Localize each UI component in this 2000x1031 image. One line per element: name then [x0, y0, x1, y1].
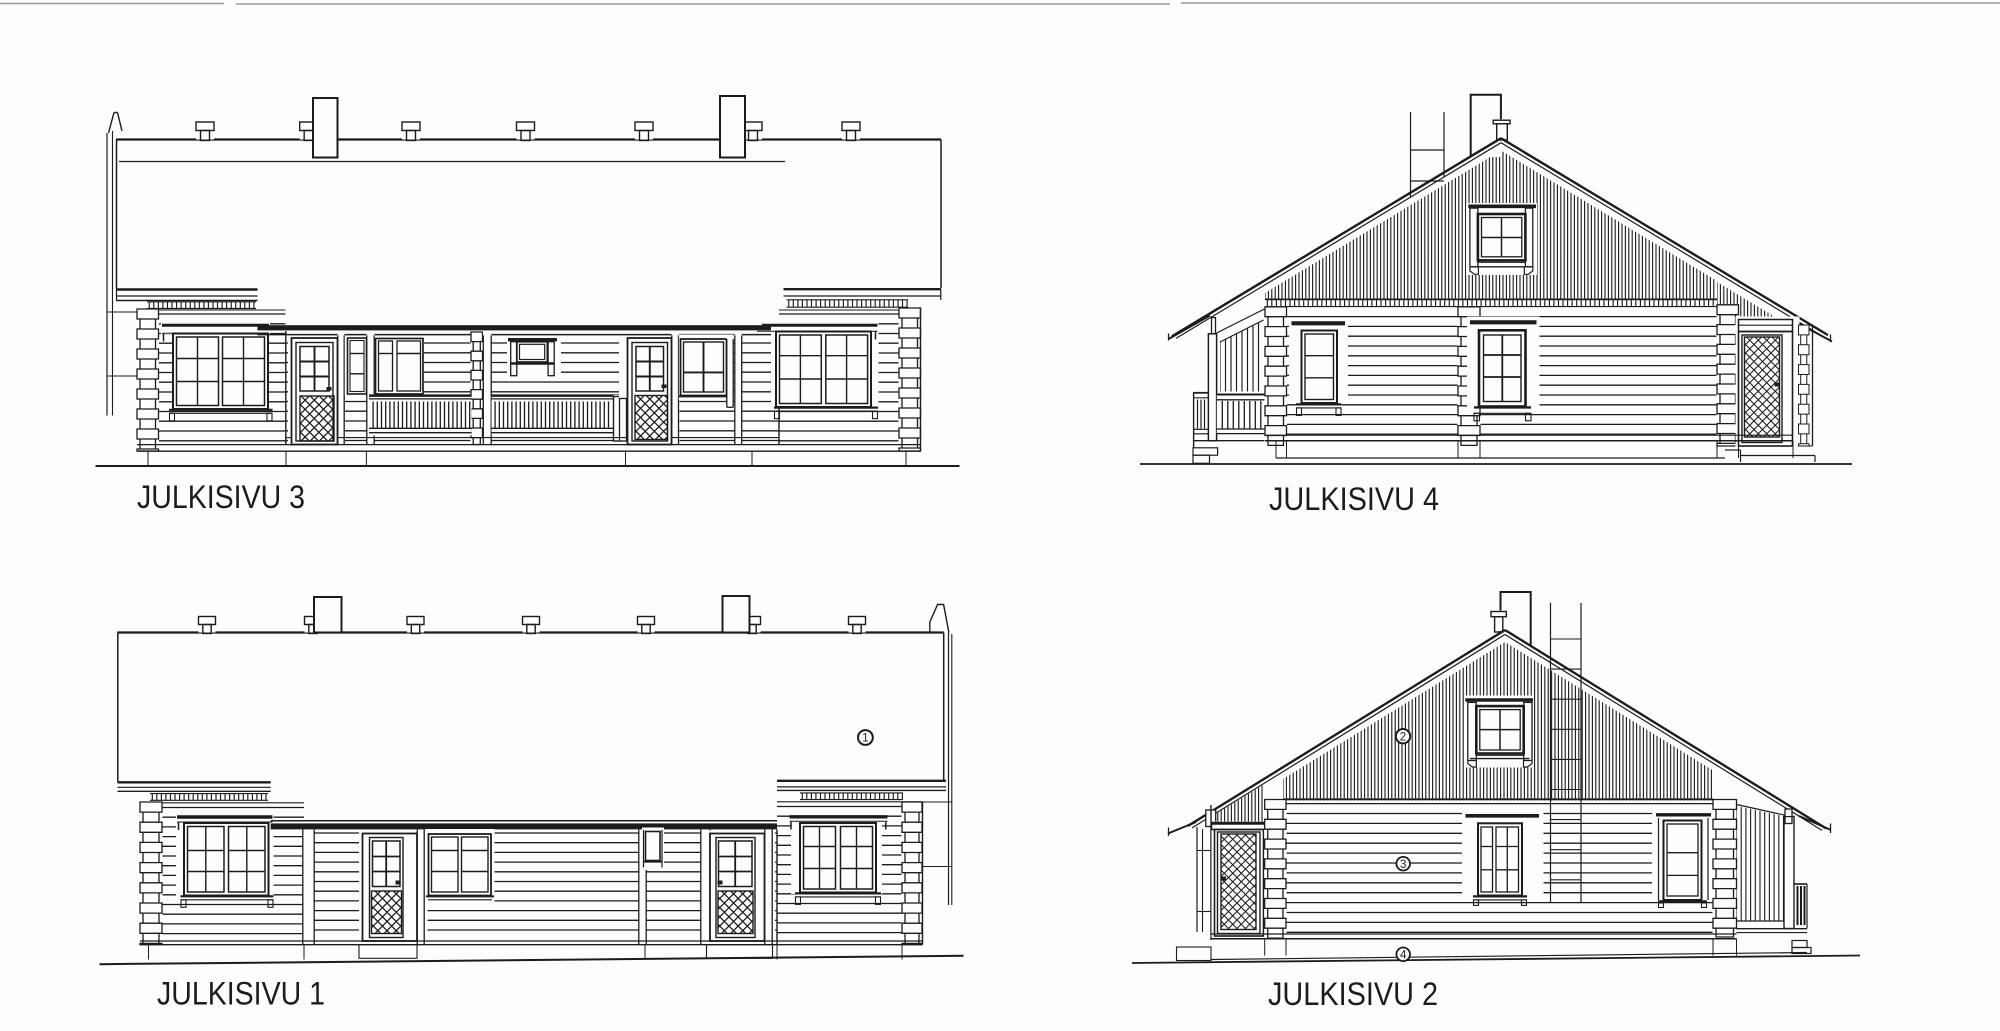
svg-text:3: 3 [1400, 859, 1406, 871]
svg-text:JULKISIVU 3: JULKISIVU 3 [137, 479, 305, 515]
svg-text:JULKISIVU 1: JULKISIVU 1 [157, 976, 325, 1012]
svg-text:2: 2 [1400, 731, 1406, 743]
svg-text:4: 4 [1400, 949, 1407, 961]
svg-text:1: 1 [862, 733, 868, 745]
svg-text:JULKISIVU 2: JULKISIVU 2 [1268, 976, 1438, 1012]
svg-text:JULKISIVU 4: JULKISIVU 4 [1269, 481, 1439, 517]
